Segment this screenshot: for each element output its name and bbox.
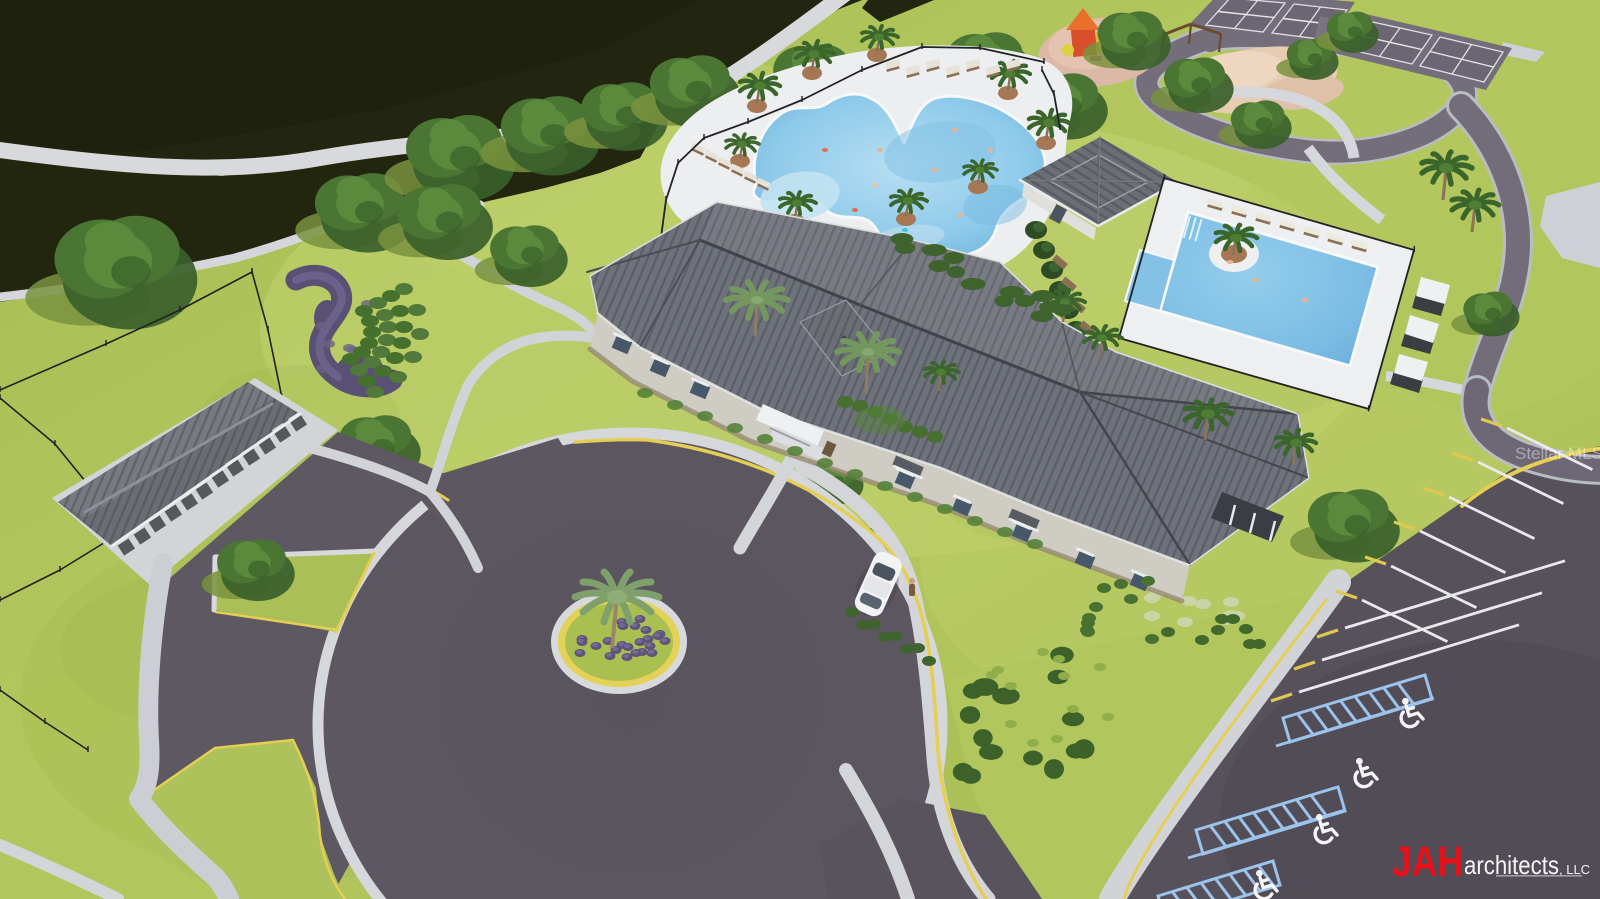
svg-text:, LLC: , LLC: [1559, 862, 1590, 877]
svg-text:JAH: JAH: [1392, 838, 1463, 886]
svg-text:Stellar MLS: Stellar MLS: [1515, 444, 1600, 463]
